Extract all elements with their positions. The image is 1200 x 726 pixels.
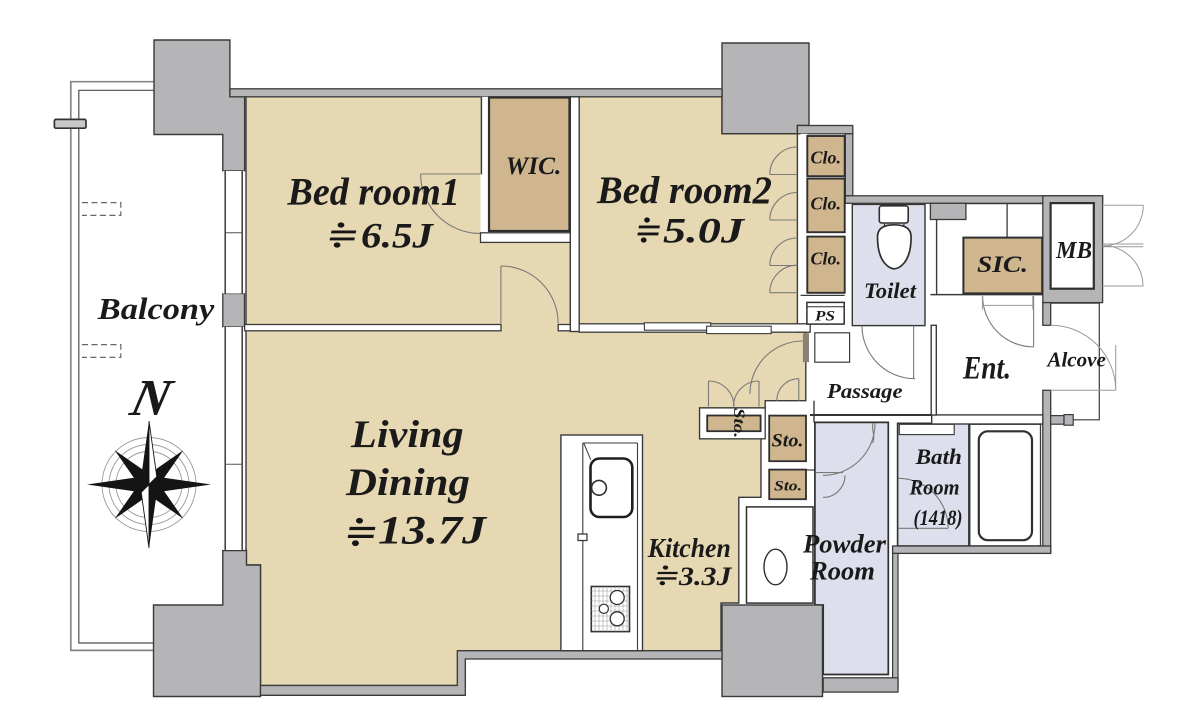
svg-text:Passage: Passage	[826, 379, 903, 403]
svg-text:Dining: Dining	[345, 461, 470, 504]
svg-text:Toilet: Toilet	[864, 278, 917, 303]
svg-text:Alcove: Alcove	[1045, 348, 1106, 372]
svg-text:Bed room1: Bed room1	[287, 171, 460, 214]
svg-text:Bed room2: Bed room2	[596, 169, 772, 212]
svg-text:6.5J: 6.5J	[361, 216, 434, 256]
svg-text:(1418): (1418)	[914, 505, 963, 530]
svg-text:13.7J: 13.7J	[378, 508, 488, 553]
svg-text:Clo.: Clo.	[811, 148, 842, 168]
svg-text:SIC.: SIC.	[977, 252, 1028, 277]
svg-text:Bath: Bath	[915, 444, 962, 469]
svg-text:Clo.: Clo.	[811, 194, 842, 214]
svg-text:Room: Room	[909, 475, 960, 500]
svg-text:Clo.: Clo.	[811, 249, 842, 269]
svg-text:Balcony: Balcony	[97, 291, 215, 326]
svg-text:Living: Living	[350, 413, 464, 456]
svg-text:MB: MB	[1055, 238, 1092, 264]
svg-text:3.3J: 3.3J	[678, 562, 733, 591]
svg-text:Ent.: Ent.	[962, 351, 1011, 387]
svg-text:5.0J: 5.0J	[663, 211, 745, 251]
svg-text:Sto.: Sto.	[774, 479, 802, 495]
svg-text:Sto.: Sto.	[730, 408, 747, 438]
svg-text:WIC.: WIC.	[506, 153, 562, 180]
svg-text:Kitchen: Kitchen	[647, 533, 731, 563]
svg-text:Sto.: Sto.	[772, 431, 804, 452]
svg-text:PS: PS	[815, 309, 835, 325]
svg-text:Powder: Powder	[802, 530, 887, 559]
svg-text:Room: Room	[809, 557, 875, 586]
